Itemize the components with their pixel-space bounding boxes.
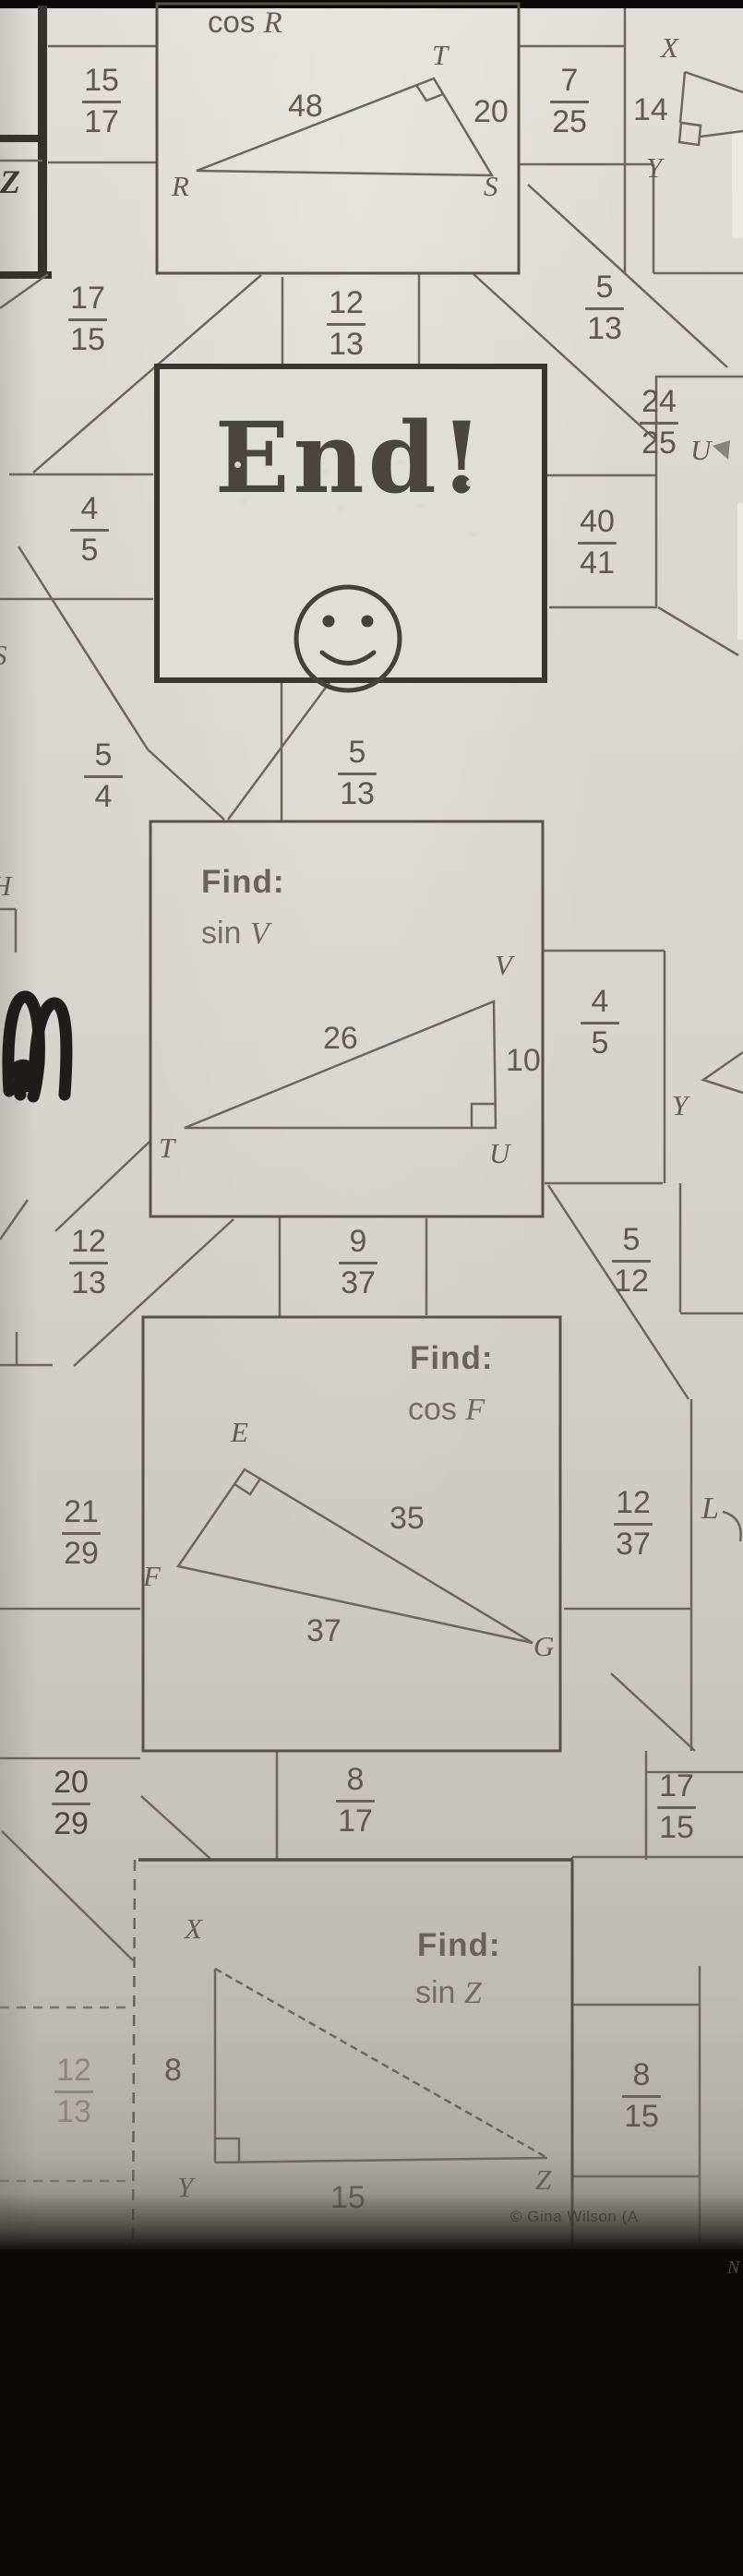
answer-fraction-21-29: 2129 xyxy=(59,1496,103,1570)
side-label-35: 35 xyxy=(389,1501,425,1537)
problem-box-cos-r xyxy=(157,4,519,273)
end-label: End! xyxy=(157,404,545,512)
triangle-rst xyxy=(197,78,492,175)
side-label-20: 20 xyxy=(473,94,509,130)
find-label-sin-v: Find: xyxy=(201,864,285,901)
paper-edge-shadow xyxy=(0,2152,743,2254)
answer-fraction-40-41: 4041 xyxy=(575,506,619,580)
partial-triangle-y-mid xyxy=(703,1052,743,1093)
vertex-label-f: F xyxy=(143,1560,161,1593)
answer-fraction-4-5b: 45 xyxy=(578,986,622,1060)
vertex-label-s: S xyxy=(484,170,498,203)
side-label-10: 10 xyxy=(506,1043,541,1079)
edge-letter-z: Z xyxy=(0,162,20,201)
side-label-48: 48 xyxy=(288,89,323,125)
right-angle-marker-u xyxy=(472,1104,496,1128)
side-label-26: 26 xyxy=(323,1021,358,1057)
find-label-sin-z: Find: xyxy=(417,1927,501,1964)
worksheet-photo: cos R 48 20 R T S Z X Y 14 1517 725 1715… xyxy=(0,0,743,2576)
partial-figure-l-cell xyxy=(723,1512,741,1541)
expression-sin-v: sin V xyxy=(201,916,270,952)
trig-function: sin xyxy=(201,916,241,951)
vertex-label-v: V xyxy=(495,949,512,982)
answer-fraction-9-37: 937 xyxy=(336,1226,380,1300)
stamp-speckle xyxy=(417,503,424,509)
pen-scribble xyxy=(8,997,66,1096)
side-label-37: 37 xyxy=(306,1613,342,1649)
answer-fraction-5-4: 54 xyxy=(81,739,126,813)
answer-fraction-15-17: 1517 xyxy=(79,65,124,138)
angle-letter: F xyxy=(465,1393,485,1427)
answer-fraction-12-37: 1237 xyxy=(611,1487,655,1561)
vertex-label-g: G xyxy=(533,1630,554,1663)
vertex-label-e: E xyxy=(231,1416,248,1449)
side-label-8: 8 xyxy=(164,2053,182,2089)
answer-fraction-12-13b: 1213 xyxy=(66,1226,111,1300)
vertex-label-t2: T xyxy=(159,1132,174,1165)
trig-function: cos xyxy=(208,5,255,39)
edge-letter-s: S xyxy=(0,639,7,672)
vertex-label-x: X xyxy=(185,1912,202,1946)
answer-fraction-12-13: 1213 xyxy=(324,287,368,361)
small-arrow-mark xyxy=(713,440,730,460)
answer-fraction-8-17: 817 xyxy=(333,1764,377,1838)
stamp-speckle xyxy=(470,531,476,537)
partial-triangle-xy-top-right xyxy=(679,72,743,145)
answer-fraction-17-15: 1715 xyxy=(66,282,110,356)
edge-letter-n: N xyxy=(727,2258,739,2279)
edge-letter-y: Y xyxy=(646,151,662,185)
answer-fraction-5-13: 513 xyxy=(335,737,379,810)
stamp-speckle xyxy=(397,460,403,466)
angle-letter: V xyxy=(250,917,270,951)
triangle-efg xyxy=(178,1469,533,1643)
answer-14: 14 xyxy=(633,92,668,128)
trig-function: sin xyxy=(415,1975,455,2010)
answer-fraction-5-12: 512 xyxy=(609,1224,653,1298)
stamp-speckle xyxy=(234,461,241,468)
stamp-speckle xyxy=(241,498,247,505)
stamp-speckle xyxy=(338,506,344,512)
edge-letter-h: H xyxy=(0,869,11,903)
angle-letter: Z xyxy=(464,1976,482,2010)
answer-fraction-4-5: 45 xyxy=(67,493,112,567)
problem-title-cos-r: cos R xyxy=(208,5,282,41)
expression-cos-f: cos F xyxy=(408,1392,485,1428)
edge-letter-x: X xyxy=(661,31,678,65)
expression-sin-z: sin Z xyxy=(415,1975,482,2011)
answer-fraction-5-13: 513 xyxy=(582,271,627,345)
trig-function: cos xyxy=(408,1392,457,1427)
answer-fraction-7-25: 725 xyxy=(547,65,592,138)
edge-letter-y-mid: Y xyxy=(672,1089,688,1122)
answer-fraction-20-29: 2029 xyxy=(49,1767,93,1840)
answer-fraction-17-15b: 1715 xyxy=(654,1770,699,1844)
edge-letter-u: U xyxy=(690,434,711,467)
stamp-speckle xyxy=(323,469,330,475)
angle-letter: R xyxy=(264,6,282,40)
triangle-xyz-hypotenuse xyxy=(215,1969,547,2158)
find-label-cos-f: Find: xyxy=(410,1340,494,1377)
answer-fraction-8-15: 815 xyxy=(619,2059,664,2133)
vertex-label-u2: U xyxy=(489,1137,509,1170)
edge-letter-l: L xyxy=(701,1492,719,1527)
answer-fraction-12-13c: 1213 xyxy=(52,2055,96,2128)
stamp-speckle xyxy=(466,480,473,486)
vertex-label-r: R xyxy=(172,170,189,203)
answer-fraction-24-25: 2425 xyxy=(637,386,681,460)
right-angle-marker-e xyxy=(234,1479,260,1494)
inked-cell-border xyxy=(0,6,52,278)
vertex-label-t: T xyxy=(432,39,448,72)
